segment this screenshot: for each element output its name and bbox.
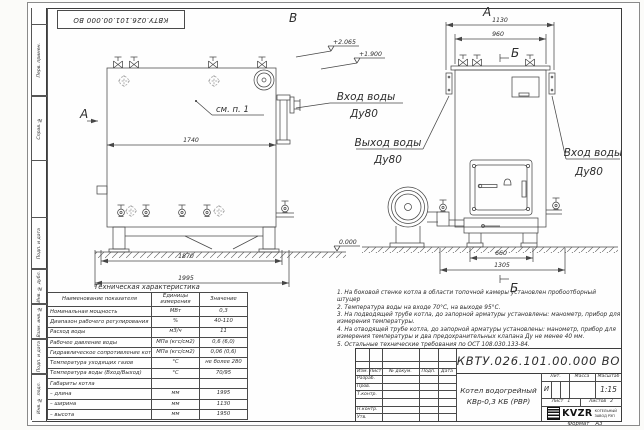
side-view: 1740 1870 1995 В А см. п. 1 Вход воды Ду… bbox=[79, 11, 403, 287]
format-note: ФорматА3 bbox=[545, 421, 625, 427]
spec-row: – длинамм1995 bbox=[48, 389, 248, 399]
spec-row: Номинальная мощностьМВт0,3 bbox=[48, 307, 248, 317]
format-label: Формат bbox=[568, 421, 590, 427]
spec-header: Значение bbox=[200, 293, 248, 307]
sheets-value: 2 bbox=[610, 399, 613, 404]
spec-row: Рабочее давление водыМПа (кгс/см2)0,6 (6… bbox=[48, 337, 248, 347]
company-logo-row: KVZR КОТЕЛЬНЫЙ ЗАВОД РЭП bbox=[542, 406, 622, 421]
kvzr-logo-icon bbox=[547, 407, 560, 420]
sheet-value: 1 bbox=[567, 399, 570, 404]
label-outlet-dn: Ду80 bbox=[373, 154, 402, 166]
lit-value: И bbox=[542, 381, 551, 397]
furnace-door bbox=[470, 160, 532, 215]
spec-table-title: Техническая характеристика bbox=[47, 283, 247, 291]
col-list: Лист bbox=[369, 368, 382, 375]
elevation-2065: +2.065 bbox=[333, 39, 356, 46]
dim-1130: 1130 bbox=[492, 17, 508, 24]
spec-row: Температура уходящих газов°Сне более 280 bbox=[48, 358, 248, 368]
callout-see-note-1: см. п. 1 bbox=[216, 105, 249, 115]
blower-fan bbox=[388, 187, 438, 247]
col-data: Дата bbox=[438, 368, 456, 375]
title-block: Изм. Лист № докум. Подп. Дата Разраб. Пр… bbox=[355, 348, 622, 422]
spec-row: – ширинамм1130 bbox=[48, 399, 248, 409]
label-inlet-front: Вход воды bbox=[564, 147, 623, 159]
spec-row: Диапазон рабочего регулирования%40-110 bbox=[48, 317, 248, 327]
sheet-cell: Лист 1 bbox=[542, 398, 580, 406]
product-line2: КВр-0,3 КБ (РВР) bbox=[467, 397, 530, 408]
title-block-right: Лит. Масса Масштаб И 1:15 Лист 1 Листов … bbox=[541, 373, 622, 421]
col-docnum: № докум. bbox=[382, 368, 419, 375]
company-name: КОТЕЛЬНЫЙ ЗАВОД РЭП bbox=[595, 409, 617, 417]
row-utv: Утв. bbox=[357, 413, 387, 421]
format-value: А3 bbox=[595, 421, 602, 427]
section-mark-b-top: Б bbox=[511, 46, 519, 60]
scale-value: 1:15 bbox=[595, 381, 622, 397]
company-line1: КОТЕЛЬНЫЙ bbox=[595, 409, 617, 413]
view-label-v: В bbox=[289, 11, 297, 25]
label-outlet: Выход воды bbox=[355, 137, 422, 149]
sheets-label: Листов bbox=[589, 399, 606, 404]
note-item: 1. На боковой стенке котла в области топ… bbox=[337, 290, 621, 304]
dim-660: 660 bbox=[495, 250, 507, 257]
row-prov: Пров. bbox=[357, 383, 387, 391]
row-razrab: Разраб. bbox=[357, 375, 387, 383]
spec-row: – высотамм1950 bbox=[48, 409, 248, 419]
technical-notes: 1. На боковой стенке котла в области топ… bbox=[337, 290, 621, 350]
note-item: 2. Температура воды на входе 70°С, на вы… bbox=[337, 305, 621, 312]
row-nkontr: Н.контр. bbox=[357, 406, 387, 414]
spec-header: Наименование показателя bbox=[48, 293, 152, 307]
col-izm: Изм. bbox=[356, 368, 369, 375]
dim-1870: 1870 bbox=[178, 253, 194, 260]
spec-header: Единицы измерения bbox=[152, 293, 200, 307]
mass-label: Масса bbox=[569, 373, 595, 381]
kvzr-logo-text: KVZR bbox=[562, 408, 593, 419]
label-inlet-side: Вход воды bbox=[337, 91, 396, 103]
dim-1740: 1740 bbox=[183, 137, 199, 144]
note-item: 4. На отводящей трубе котла, до запорной… bbox=[337, 327, 621, 341]
dim-1305: 1305 bbox=[494, 262, 510, 269]
title-block-doc-number: КВТУ.026.101.00.000 ВО bbox=[456, 349, 621, 374]
sheet-label: Лист bbox=[552, 399, 564, 404]
note-item: 3. На подводящей трубе котла, до запорно… bbox=[337, 312, 621, 326]
scale-label: Масштаб bbox=[595, 373, 622, 381]
spec-row: Габариты котла bbox=[48, 379, 248, 389]
spec-row: Температура воды (Вход/Выход)°С70/95 bbox=[48, 368, 248, 378]
product-line1: Котел водогрейный bbox=[460, 386, 537, 397]
row-tkontr: Т.контр. bbox=[357, 390, 387, 398]
sheets-cell: Листов 2 bbox=[580, 398, 622, 406]
drawing-sheet: { "stamp": { "doc_number": "КВТУ.026.101… bbox=[0, 0, 644, 430]
elevation-0000: 0.000 bbox=[339, 239, 357, 246]
spec-row: Гидравлическое сопротивление котлаМПа (к… bbox=[48, 348, 248, 358]
label-inlet-front-dn: Ду80 bbox=[574, 166, 603, 178]
spec-row: Расход водым3/ч11 bbox=[48, 327, 248, 337]
lit-label: Лит. bbox=[542, 373, 569, 381]
col-podp: Подп. bbox=[419, 368, 438, 375]
elevation-1900: +1.900 bbox=[359, 51, 382, 58]
spec-table: Наименование показателя Единицы измерени… bbox=[47, 292, 248, 420]
front-view: Б bbox=[355, 5, 623, 295]
company-line2: ЗАВОД РЭП bbox=[595, 414, 617, 418]
dim-960: 960 bbox=[492, 31, 504, 38]
spec-header-row: Наименование показателя Единицы измерени… bbox=[48, 293, 248, 307]
control-panel bbox=[512, 77, 539, 97]
view-arrow-a: А bbox=[79, 107, 88, 121]
product-name: Котел водогрейный КВр-0,3 КБ (РВР) bbox=[456, 373, 541, 421]
label-inlet-side-dn: Ду80 bbox=[349, 108, 378, 120]
dim-1995: 1995 bbox=[178, 275, 194, 282]
view-label-a: А bbox=[482, 5, 491, 19]
